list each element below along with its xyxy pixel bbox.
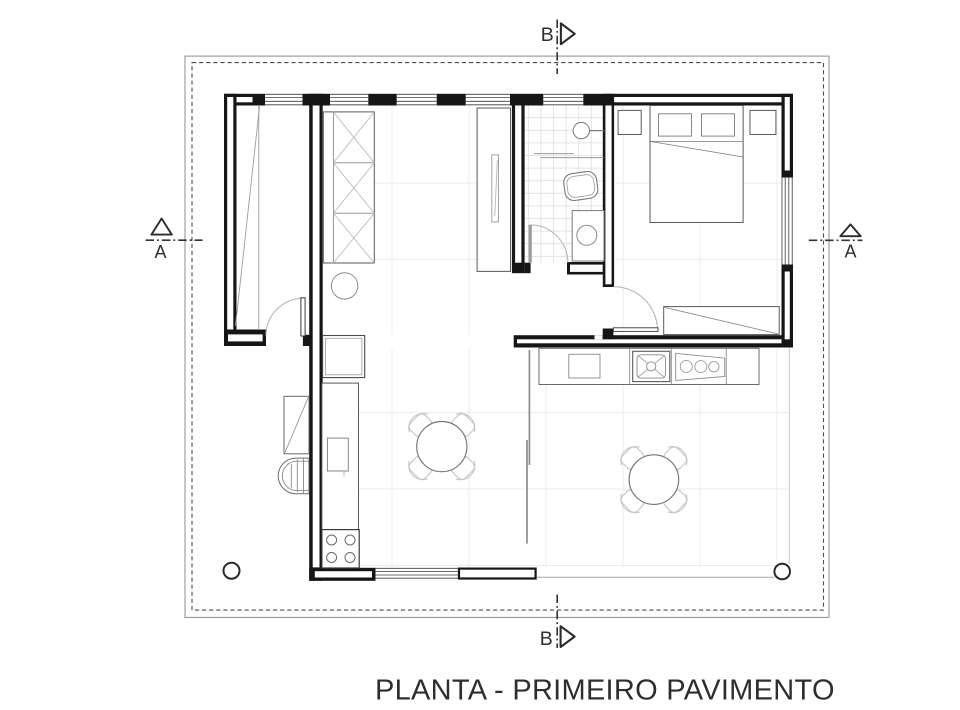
svg-text:A: A xyxy=(845,242,857,262)
svg-text:B: B xyxy=(540,628,553,650)
svg-text:PLANTA - PRIMEIRO PAVIMENTO: PLANTA - PRIMEIRO PAVIMENTO xyxy=(375,675,835,707)
svg-text:B: B xyxy=(541,24,554,46)
svg-text:A: A xyxy=(155,242,167,262)
